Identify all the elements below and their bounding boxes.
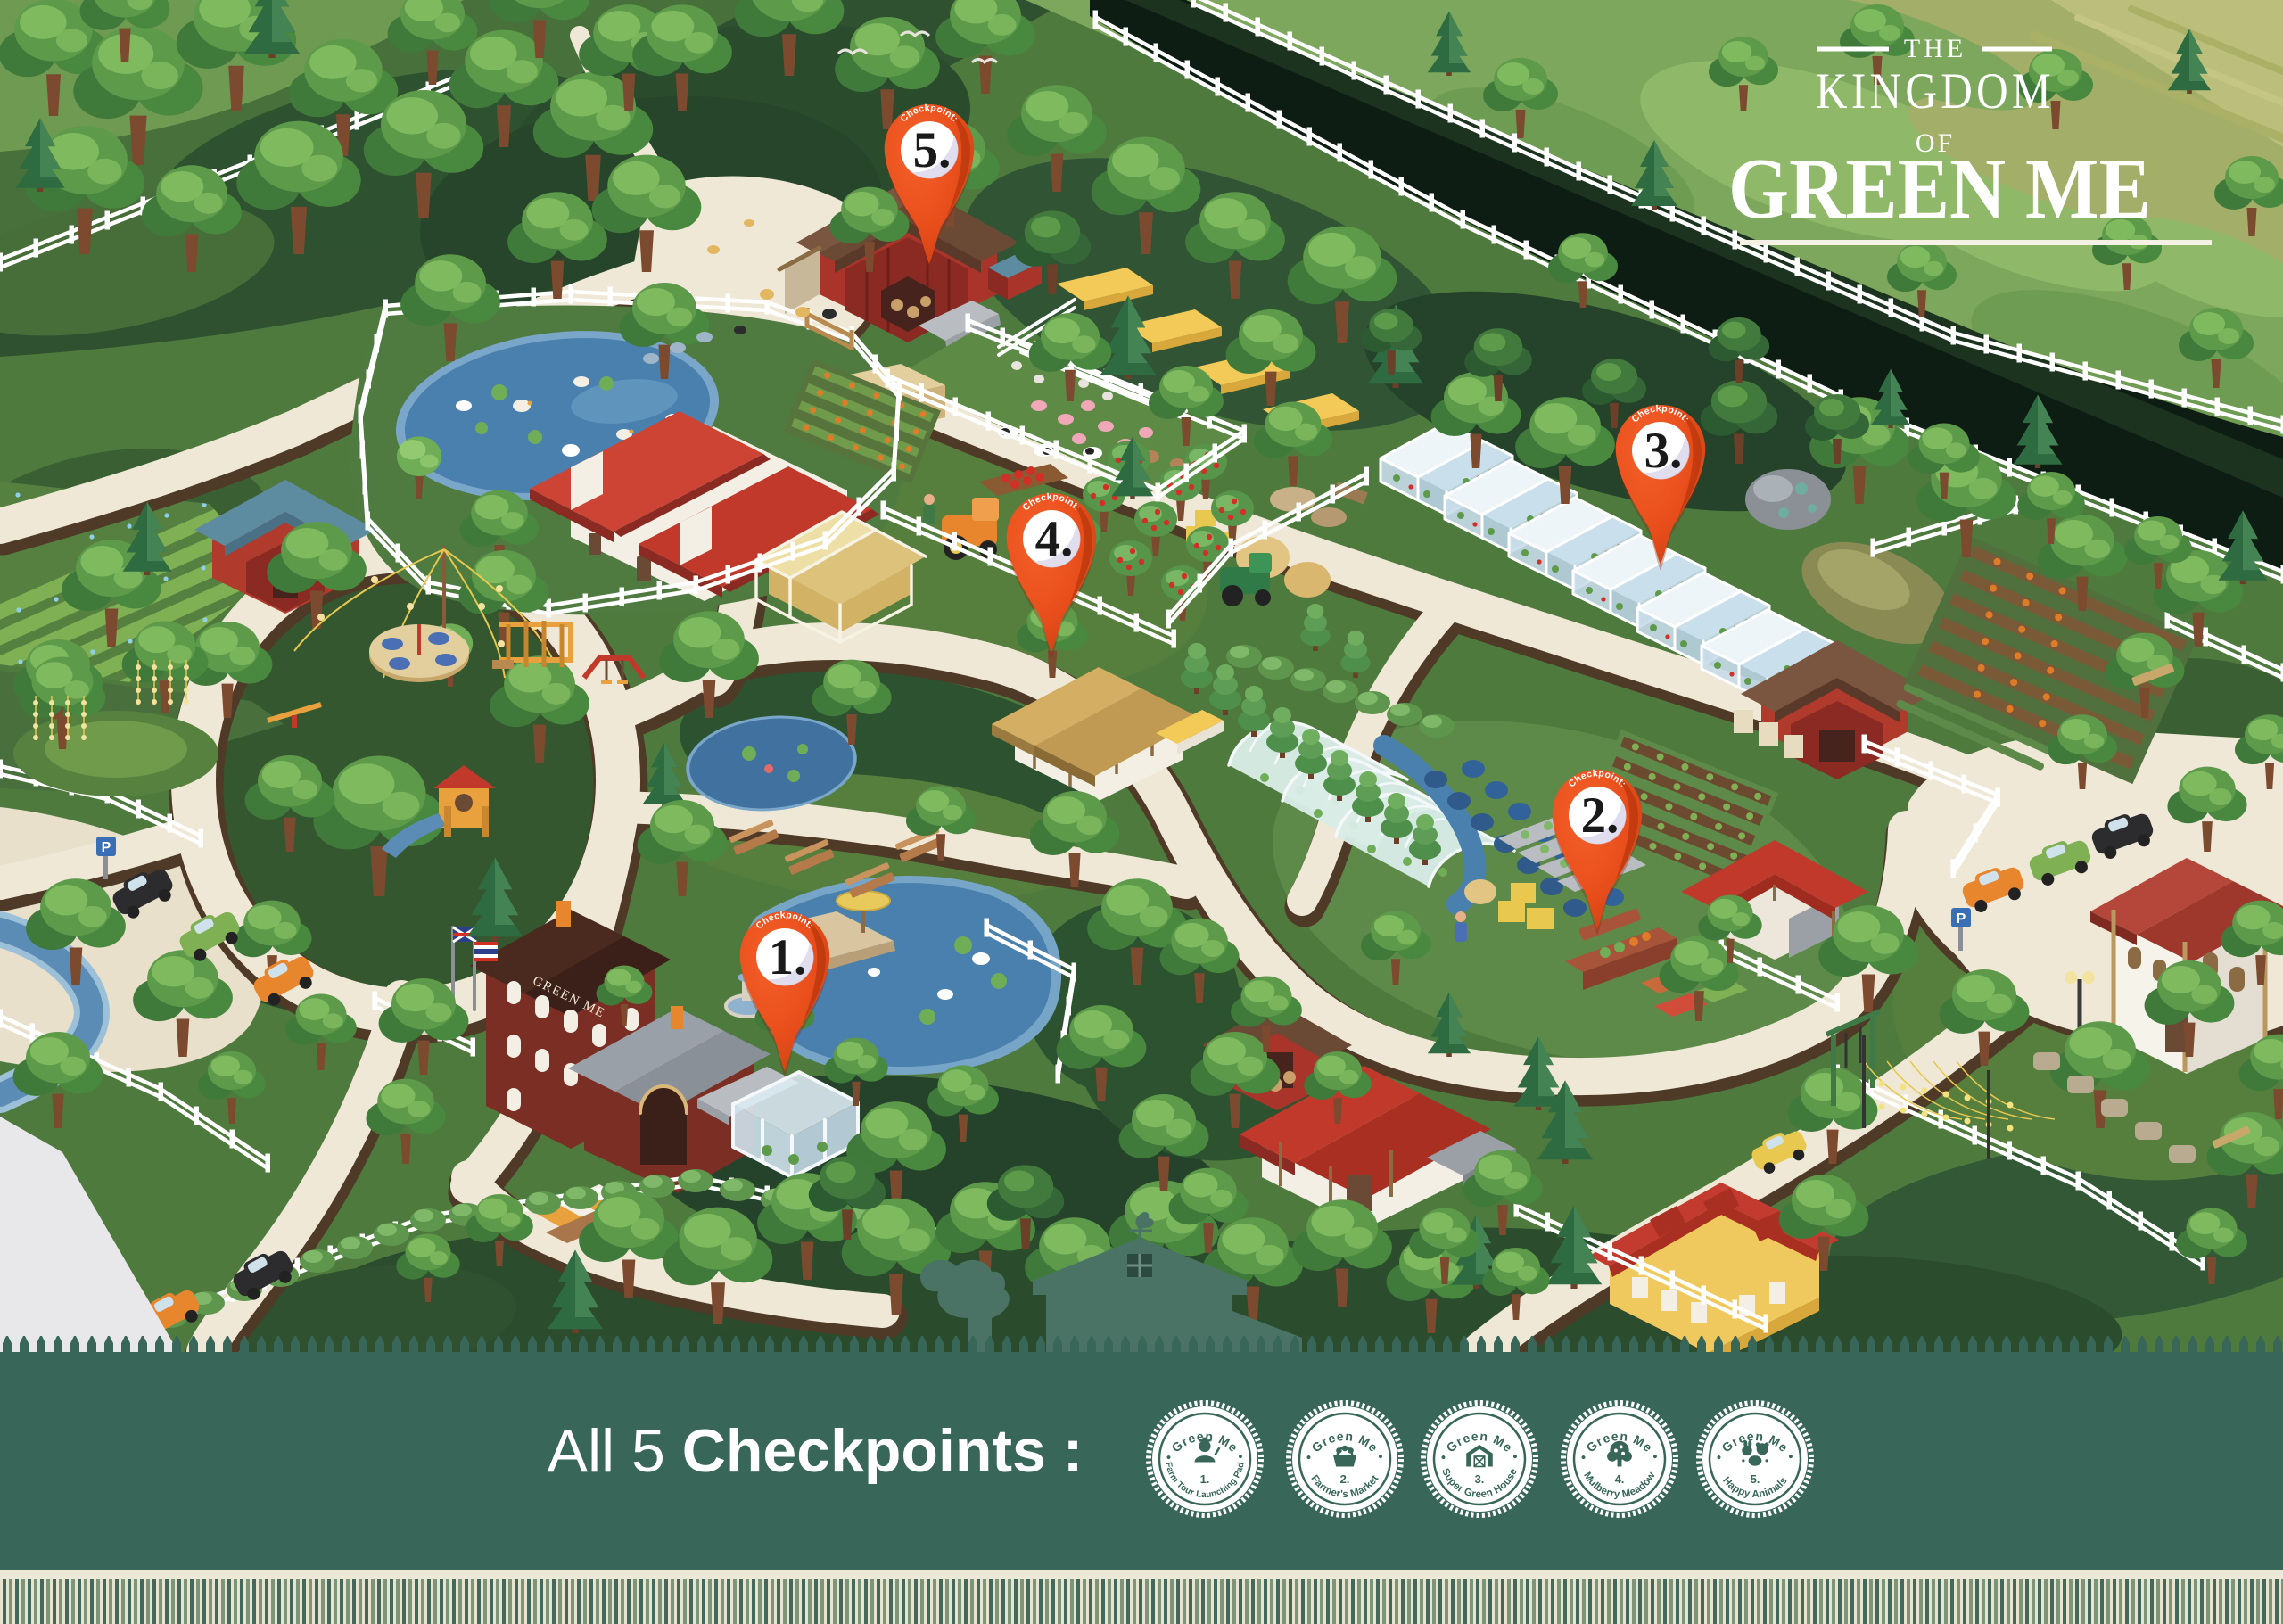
svg-text:All 5 Checkpoints :: All 5 Checkpoints : — [548, 1417, 1084, 1485]
svg-text:1.: 1. — [1200, 1472, 1210, 1486]
svg-text:2.: 2. — [1581, 787, 1620, 844]
svg-text:P: P — [102, 840, 111, 855]
svg-text:THE: THE — [1904, 34, 1966, 63]
svg-text:2.: 2. — [1340, 1472, 1350, 1486]
svg-text:3.: 3. — [1644, 423, 1683, 479]
svg-text:4.: 4. — [1615, 1472, 1625, 1486]
svg-text:5.: 5. — [913, 122, 952, 178]
svg-text:KINGDOM: KINGDOM — [1816, 63, 2055, 120]
svg-text:P: P — [1957, 911, 1966, 927]
svg-text:GREEN ME: GREEN ME — [1728, 141, 2151, 236]
svg-text:3.: 3. — [1475, 1472, 1485, 1486]
svg-text:4.: 4. — [1035, 511, 1074, 567]
svg-text:5.: 5. — [1751, 1472, 1760, 1486]
svg-text:1.: 1. — [769, 929, 807, 985]
